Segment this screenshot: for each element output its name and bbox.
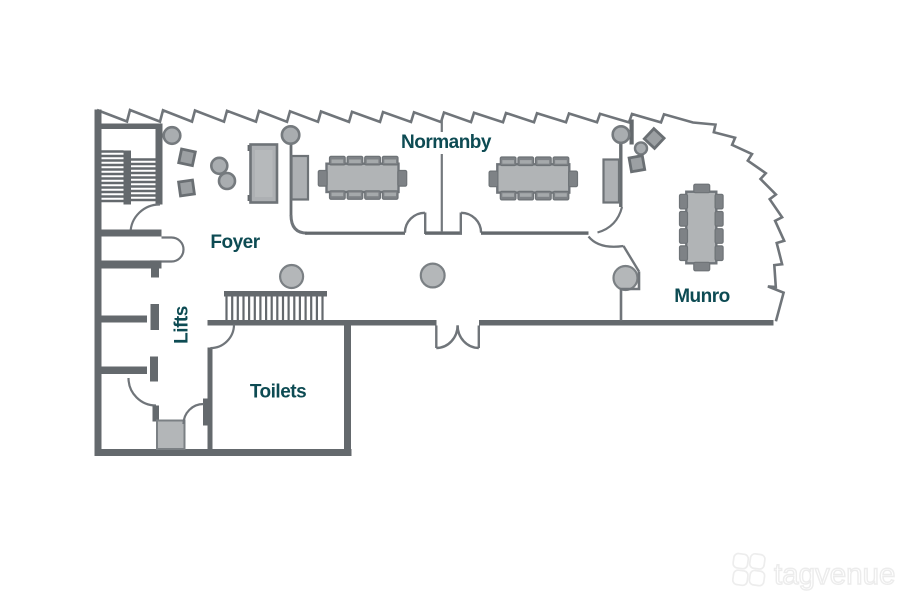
- svg-text:tagvenue: tagvenue: [774, 558, 895, 591]
- svg-text:Normanby: Normanby: [401, 132, 492, 153]
- svg-text:Foyer: Foyer: [210, 232, 260, 253]
- svg-text:Toilets: Toilets: [250, 382, 306, 403]
- svg-text:Munro: Munro: [674, 286, 730, 307]
- svg-text:Lifts: Lifts: [172, 306, 193, 344]
